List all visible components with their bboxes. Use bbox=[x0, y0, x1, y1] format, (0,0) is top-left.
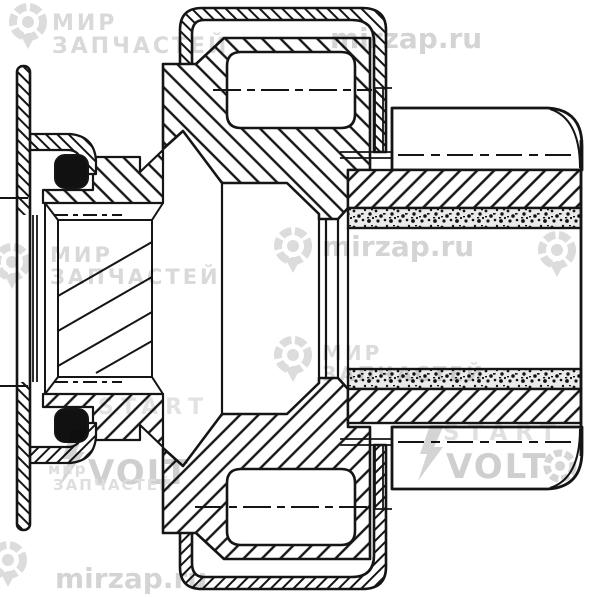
drawing-layer bbox=[0, 8, 582, 589]
watermark-text: VOLT bbox=[446, 447, 548, 487]
watermark-text: START bbox=[98, 395, 210, 420]
map-pin-gear-logo-icon bbox=[278, 231, 308, 273]
map-pin-gear-logo-icon bbox=[0, 545, 23, 587]
pinion-barrel bbox=[348, 140, 581, 456]
map-pin-gear-logo-icon bbox=[13, 7, 43, 49]
barrel-wall-lower bbox=[348, 389, 581, 423]
bushing-upper bbox=[348, 208, 581, 228]
starter-drive-cross-section: МИР ЗАПЧАСТЕЙ mirzap.ru МИР ЗАПЧАСТЕЙ mi… bbox=[0, 0, 600, 597]
barrel-wall-upper bbox=[348, 170, 581, 208]
watermark-text: mirzap.ru bbox=[322, 230, 474, 263]
watermark-text: ЗАПЧАСТЕЙ bbox=[50, 264, 221, 289]
watermark-text: МИР bbox=[52, 11, 117, 36]
watermark-text: ЗАПЧАСТЕЙ bbox=[322, 362, 486, 386]
watermark-text: START bbox=[443, 420, 564, 446]
helical-spline-bore bbox=[45, 203, 163, 394]
map-pin-gear-logo-icon bbox=[542, 235, 572, 277]
technical-drawing-page: МИР ЗАПЧАСТЕЙ mirzap.ru МИР ЗАПЧАСТЕЙ mi… bbox=[0, 0, 600, 597]
watermark-text: ЗАПЧАСТЕЙ bbox=[52, 33, 229, 59]
watermark-text: mirzap.ru bbox=[55, 562, 207, 595]
map-pin-gear-logo-icon bbox=[278, 340, 308, 382]
watermark-layer: МИР ЗАПЧАСТЕЙ mirzap.ru МИР ЗАПЧАСТЕЙ mi… bbox=[0, 7, 573, 595]
map-pin-gear-logo-icon bbox=[0, 247, 27, 289]
watermark-text: ЗАПЧАСТЕЙ bbox=[53, 475, 174, 494]
watermark-text: mirzap.ru bbox=[330, 22, 482, 55]
watermark-text: МИР bbox=[50, 243, 113, 267]
